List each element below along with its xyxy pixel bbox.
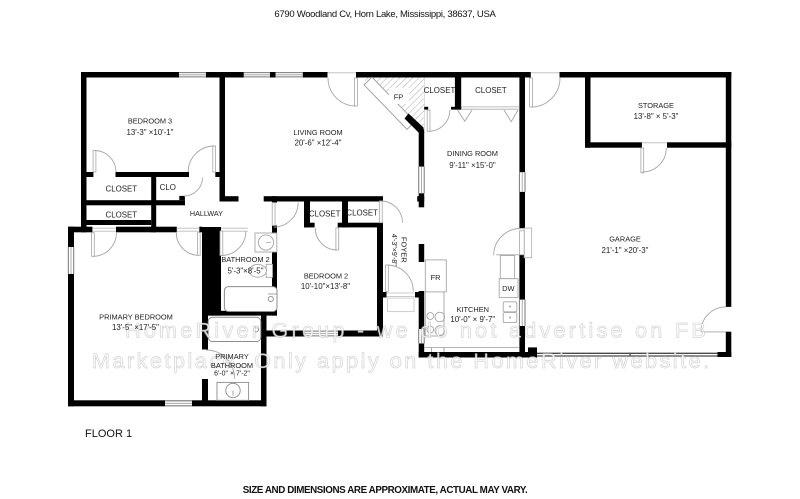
svg-text:HomeRiver Group - we do not ad: HomeRiver Group - we do not advertise on…	[125, 319, 709, 343]
svg-text:HALLWAY: HALLWAY	[190, 209, 223, 218]
svg-text:10'-10"×13'-8": 10'-10"×13'-8"	[301, 282, 350, 291]
svg-text:DW: DW	[502, 284, 514, 293]
svg-text:FOYER: FOYER	[400, 237, 409, 263]
svg-text:FP: FP	[394, 93, 404, 102]
svg-text:BEDROOM 2: BEDROOM 2	[304, 272, 348, 281]
svg-text:LIVING ROOM: LIVING ROOM	[293, 128, 342, 137]
svg-text:GARAGE: GARAGE	[609, 235, 641, 244]
svg-text:CLOSET: CLOSET	[106, 185, 138, 194]
svg-text:Marketplace. Only apply on the: Marketplace. Only apply on the HomeRiver…	[92, 349, 712, 373]
svg-text:CLO: CLO	[160, 183, 176, 192]
svg-text:FR: FR	[431, 273, 441, 282]
svg-text:CLOSET: CLOSET	[346, 208, 378, 217]
svg-text:5'-3"×8'-5": 5'-3"×8'-5"	[227, 267, 263, 276]
svg-text:CLOSET: CLOSET	[309, 209, 341, 218]
svg-text:KITCHEN: KITCHEN	[457, 305, 489, 314]
svg-text:13'-3" ×10'-1": 13'-3" ×10'-1"	[126, 128, 173, 137]
svg-text:CLOSET: CLOSET	[424, 86, 456, 95]
svg-text:FLOOR 1: FLOOR 1	[85, 428, 132, 440]
svg-text:SIZE AND DIMENSIONS ARE APPROX: SIZE AND DIMENSIONS ARE APPROXIMATE, ACT…	[243, 485, 528, 496]
svg-text:9'-11" ×15'-0": 9'-11" ×15'-0"	[449, 161, 496, 170]
svg-text:STORAGE: STORAGE	[638, 101, 674, 110]
svg-text:13'-8" × 5'-3": 13'-8" × 5'-3"	[634, 112, 679, 121]
svg-text:PRIMARY BEDROOM: PRIMARY BEDROOM	[99, 312, 173, 321]
svg-text:BATHROOM: BATHROOM	[211, 361, 253, 370]
svg-text:BEDROOM 3: BEDROOM 3	[128, 117, 172, 126]
svg-text:6'-0" × 7'-2": 6'-0" × 7'-2"	[214, 370, 250, 377]
svg-text:PRIMARY: PRIMARY	[215, 352, 249, 361]
svg-text:13'-5" ×17'-5": 13'-5" ×17'-5"	[112, 323, 159, 332]
svg-text:4'-3"×9'-8": 4'-3"×9'-8"	[390, 234, 397, 266]
svg-text:10'-0" × 9'-7": 10'-0" × 9'-7"	[450, 315, 495, 324]
svg-text:20'-6" ×12'-4": 20'-6" ×12'-4"	[294, 139, 341, 148]
svg-text:6790 Woodland Cv, Horn Lake, M: 6790 Woodland Cv, Horn Lake, Mississippi…	[274, 9, 496, 20]
svg-text:CLOSET: CLOSET	[106, 211, 138, 220]
svg-text:BATHROOM 2: BATHROOM 2	[221, 255, 269, 264]
svg-text:CLOSET: CLOSET	[475, 86, 507, 95]
svg-text:21'-1" ×20'-3": 21'-1" ×20'-3"	[601, 246, 648, 255]
svg-text:DINING ROOM: DINING ROOM	[447, 149, 498, 158]
